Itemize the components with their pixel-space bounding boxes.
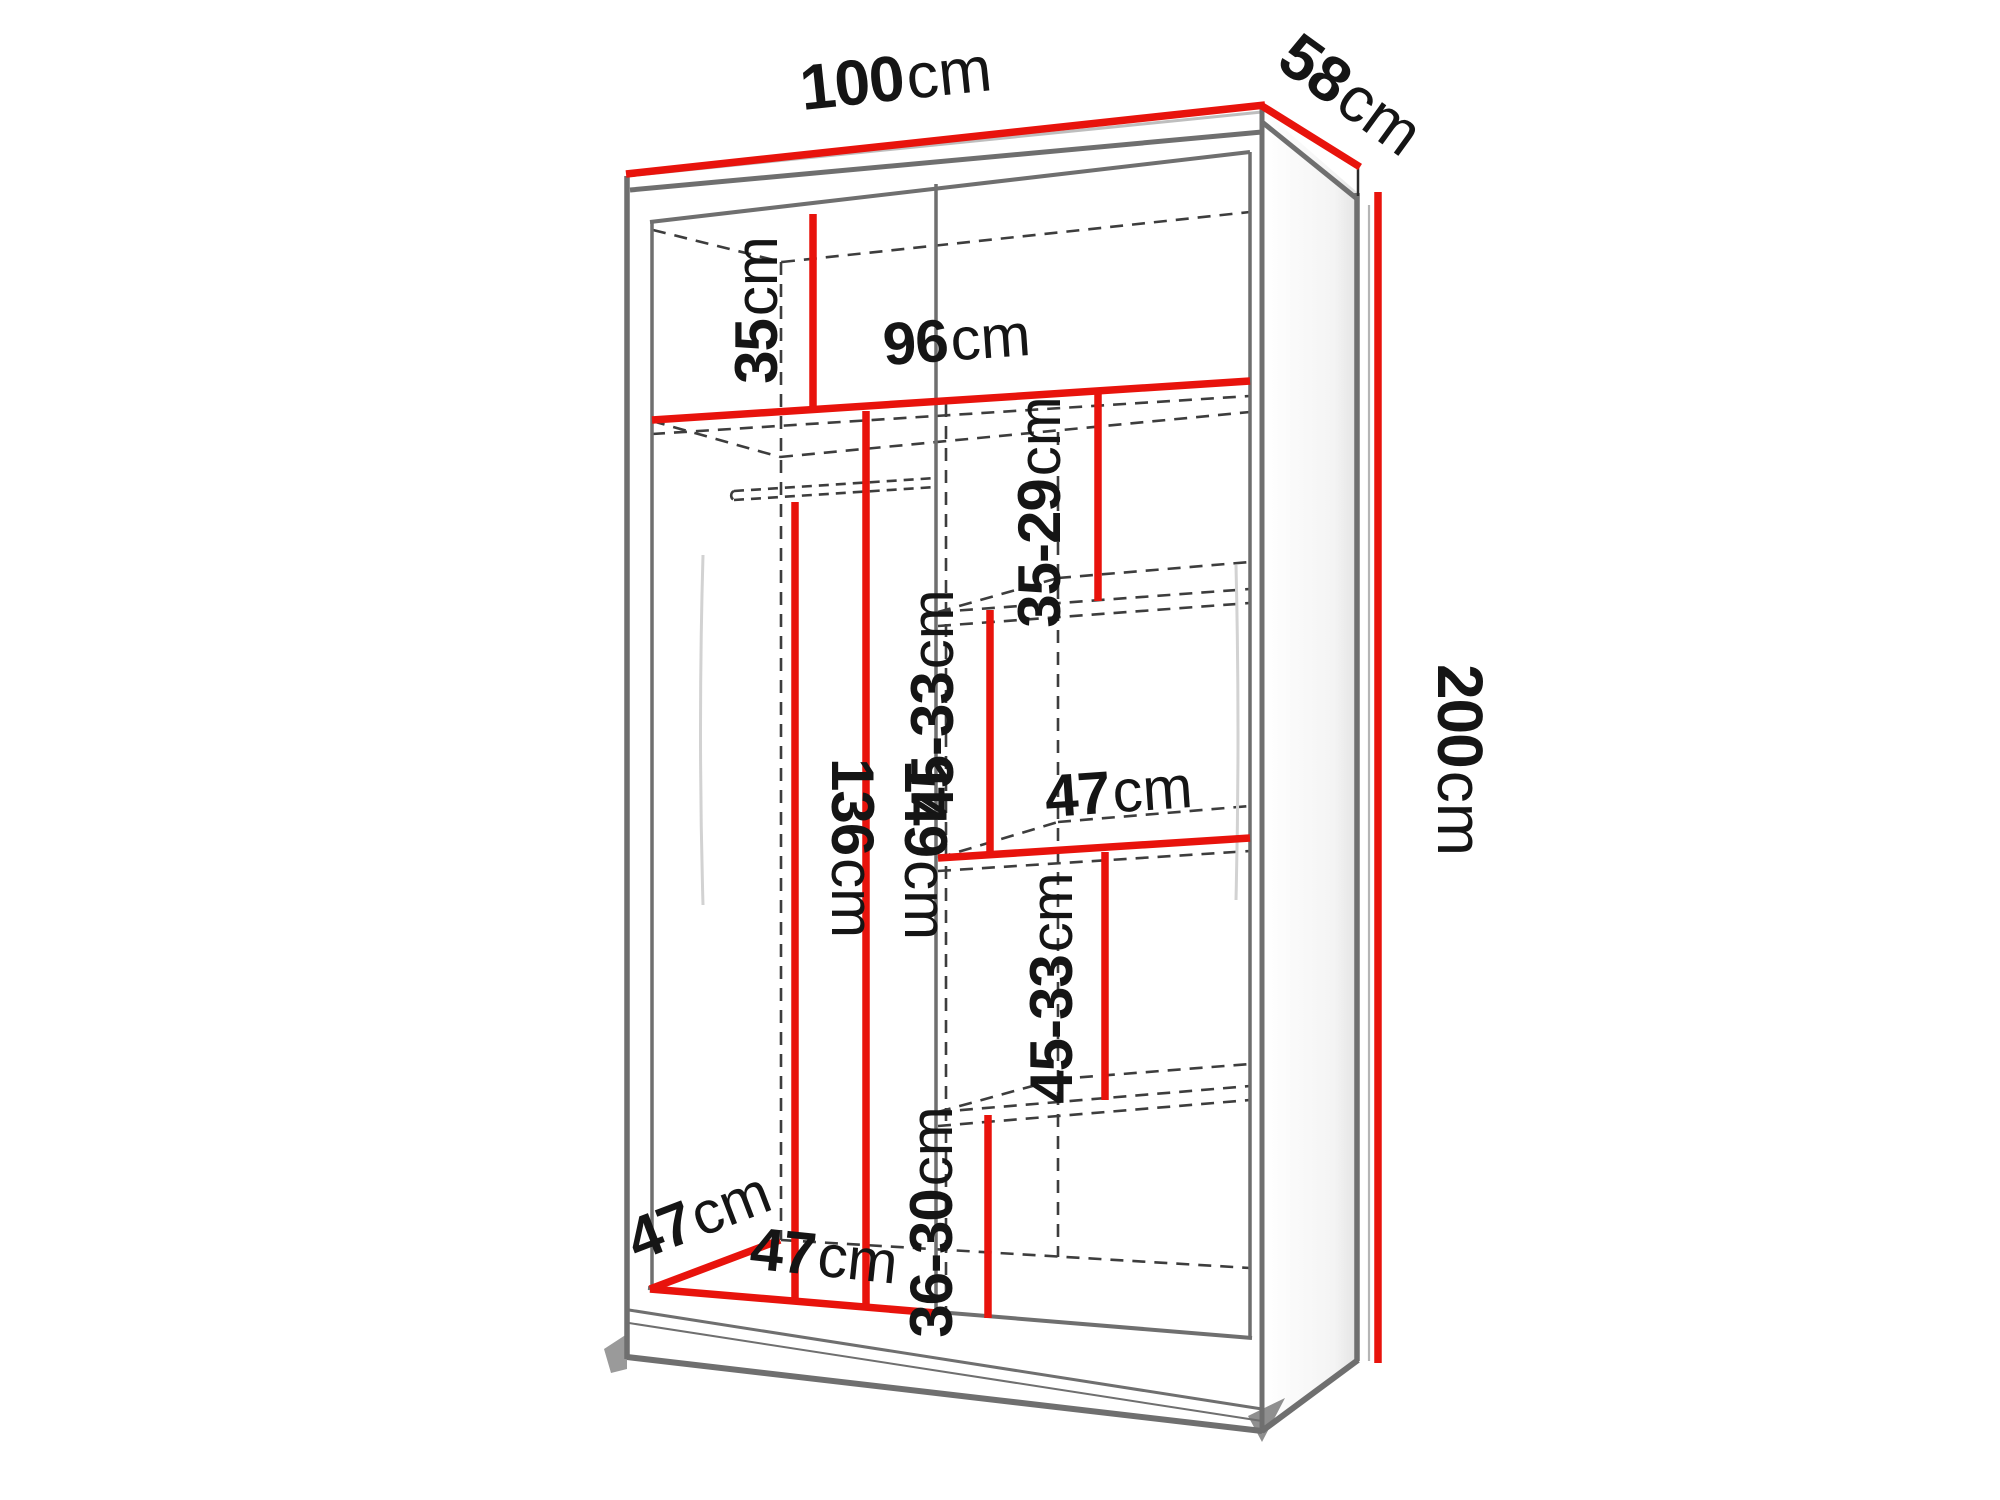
label-left-section-height: 149cm [892,760,959,940]
label-right-lower-section: 45-33cm [1018,872,1085,1103]
wardrobe-dimension-diagram: 100cm 58cm 200cm 35cm 96cm 35-29cm 45-33… [0,0,2000,1500]
label-hanging-height: 136cm [819,758,886,938]
label-top-shelf-height: 35cm [723,236,790,384]
diagram-canvas: 100cm 58cm 200cm 35cm 96cm 35-29cm 45-33… [0,0,2000,1500]
label-total-width: 100cm [796,32,995,124]
label-total-height: 200cm [1424,664,1496,856]
side-panel [1262,109,1358,1431]
label-interior-width: 96cm [881,301,1033,378]
label-right-shelf-width: 47cm [1043,753,1195,830]
label-right-bottom-section: 36-30cm [898,1106,965,1337]
label-right-top-section: 35-29cm [1006,396,1073,627]
left-foot-shadow [604,1334,627,1373]
